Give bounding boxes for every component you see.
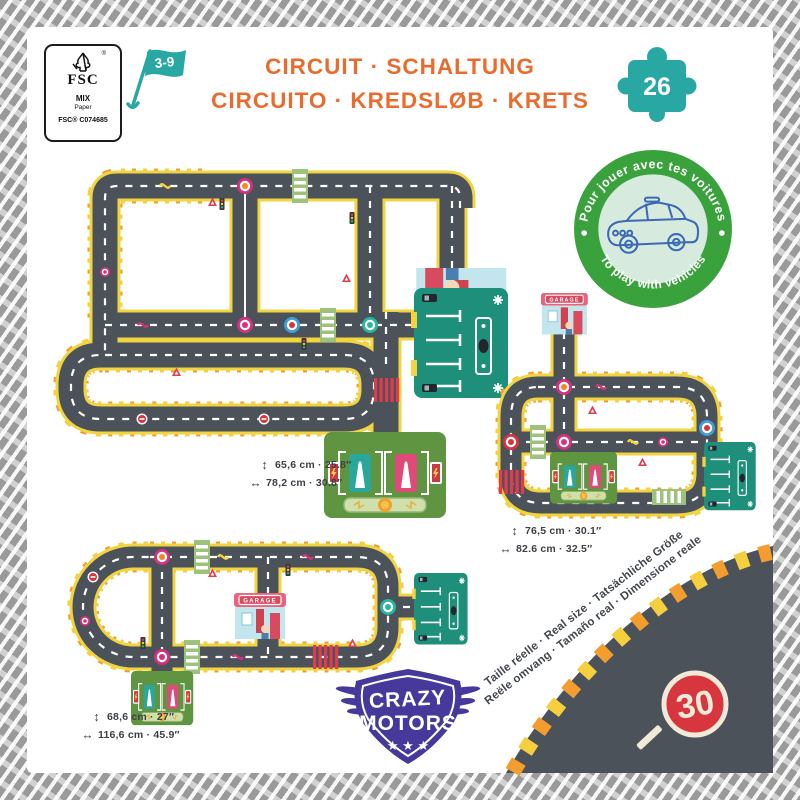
traffic-light-icon [220,198,225,210]
speed-30-sign: 30 [664,673,726,735]
crazy-motors-logo: CRAZY MOTORS ★ ★ ★ [332,664,484,772]
roundabout-icon [362,317,378,333]
circuit-2-width-label: 82.6 cm · 32.5″ [516,543,592,555]
crosswalk-icon [320,308,336,342]
roundabout-icon [556,379,572,395]
speed-sign-icon [137,414,148,425]
crosswalk-icon [194,540,210,574]
vertical-arrow-icon: ↕ [507,524,522,538]
traffic-light-icon [350,212,355,224]
crosswalk-icon [184,640,200,674]
fsc-certification-box: ® FSC MIX Paper FSC® C074685 [44,44,122,142]
small-roundabout-icon [100,267,110,277]
speed-30-label: 30 [673,683,717,727]
crosswalk-icon [530,425,546,459]
circuit-1-width-label: 78,2 cm · 30.8″ [266,477,342,489]
roundabout-icon [699,420,715,436]
circuit-2-height-label: 76,5 cm · 30.1″ [525,525,601,537]
horizontal-arrow-icon: ↔ [80,728,95,742]
parking-lot [702,442,755,510]
roundabout-icon [284,317,300,333]
roundabout-icon [154,649,170,665]
fsc-code: FSC® C074685 [46,117,120,124]
circuit-3-height-label: 68,6 cm · 27″ [107,711,174,723]
product-title: CIRCUIT · SCHALTUNG CIRCUITO · KREDSLØB … [188,50,612,118]
vertical-arrow-icon: ↕ [89,710,104,724]
brand-line-2: MOTORS [359,712,457,735]
speed-sign-icon [259,414,270,425]
warning-sign-icon [342,274,351,283]
charging-station [550,452,617,504]
brand-stars: ★ ★ ★ [387,738,429,753]
parking-lot [411,288,508,398]
fsc-paper-label: Paper [46,104,120,111]
circuit-3-dimensions: ↕68,6 cm · 27″ ↔116,6 cm · 45.9″ [80,708,180,744]
roundabout-icon [237,317,253,333]
roundabout-icon [237,178,253,194]
warning-sign-icon [638,458,647,467]
roundabout-icon [380,599,396,615]
traffic-light-icon [141,637,146,649]
parking-lot [412,573,467,645]
vertical-arrow-icon: ↕ [257,458,272,472]
title-line-2: CIRCUITO · KREDSLØB · KRETS [188,84,612,118]
play-with-vehicles-badge: Pour jouer avec tes voitures To play wit… [572,148,734,310]
age-range-flag-icon: 3-9 [122,42,196,114]
horizontal-arrow-icon: ↔ [498,542,513,556]
circuit-1-height-label: 65,6 cm · 25.8″ [275,459,351,471]
circuit-3-width-label: 116,6 cm · 45.9″ [98,729,180,741]
brand-line-1: CRAZY [368,686,446,713]
traffic-light-icon [286,564,291,576]
fsc-label: FSC [46,72,120,89]
piece-count-puzzle-icon: 26 [612,40,704,130]
circuit-2-dimensions: ↕76,5 cm · 30.1″ ↔82.6 cm · 32.5″ [498,522,601,558]
roundabout-icon [556,434,572,450]
roundabout-icon [503,434,519,450]
traffic-light-icon [302,338,307,350]
fsc-registered-mark: ® [102,51,106,57]
roundabout-icon [154,549,170,565]
circuit-2-graphic [499,293,756,510]
horizontal-arrow-icon: ↔ [248,476,263,490]
fsc-mix-label: MIX [46,94,120,103]
crosswalk-icon [652,489,686,505]
piece-count-label: 26 [643,73,671,101]
crosswalk-icon [292,169,308,203]
speed-sign-icon [88,572,99,583]
title-line-1: CIRCUIT · SCHALTUNG [188,50,612,84]
garage-building [234,593,286,639]
small-roundabout-icon [80,616,90,626]
small-roundabout-icon [658,437,668,447]
circuit-1-dimensions: ↕65,6 cm · 25.8″ ↔78,2 cm · 30.8″ [248,456,351,492]
age-range-label: 3-9 [154,54,175,71]
warning-sign-icon [588,406,597,415]
